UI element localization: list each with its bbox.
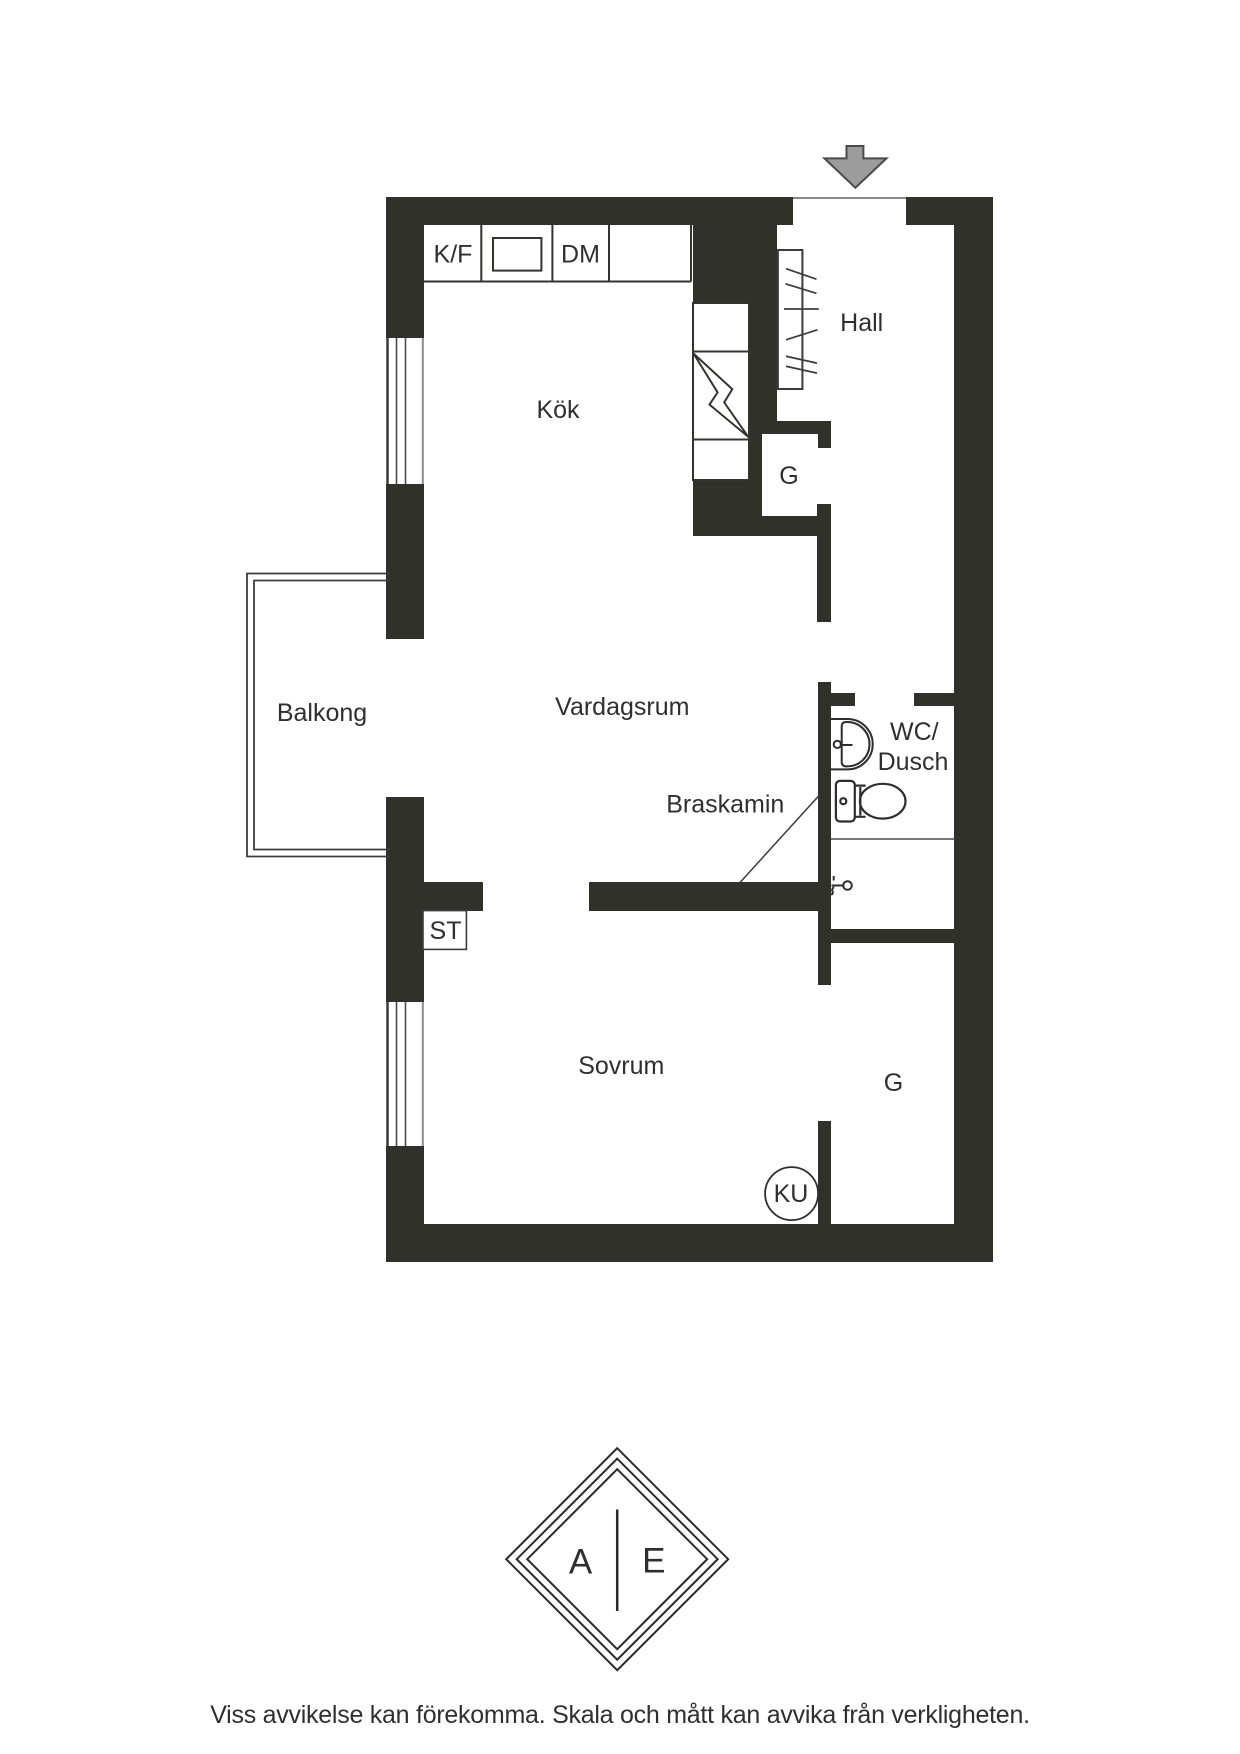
- svg-text:Dusch: Dusch: [878, 748, 949, 776]
- svg-text:Balkong: Balkong: [277, 699, 367, 727]
- svg-text:Kök: Kök: [536, 396, 580, 424]
- svg-text:KU: KU: [774, 1180, 809, 1208]
- svg-text:Viss avvikelse kan förekomma.: Viss avvikelse kan förekomma. Skala och …: [210, 1701, 1030, 1729]
- svg-text:G: G: [779, 462, 798, 490]
- svg-text:ST: ST: [430, 917, 462, 945]
- svg-text:Vardagsrum: Vardagsrum: [555, 693, 689, 721]
- svg-text:Sovrum: Sovrum: [578, 1052, 664, 1080]
- svg-text:DM: DM: [561, 241, 600, 269]
- svg-text:E: E: [642, 1542, 665, 1581]
- svg-text:Hall: Hall: [840, 309, 883, 337]
- svg-text:A: A: [569, 1543, 593, 1582]
- svg-text:G: G: [884, 1069, 903, 1097]
- svg-text:K/F: K/F: [434, 241, 473, 269]
- svg-text:Braskamin: Braskamin: [666, 791, 784, 819]
- svg-text:WC/: WC/: [890, 718, 939, 746]
